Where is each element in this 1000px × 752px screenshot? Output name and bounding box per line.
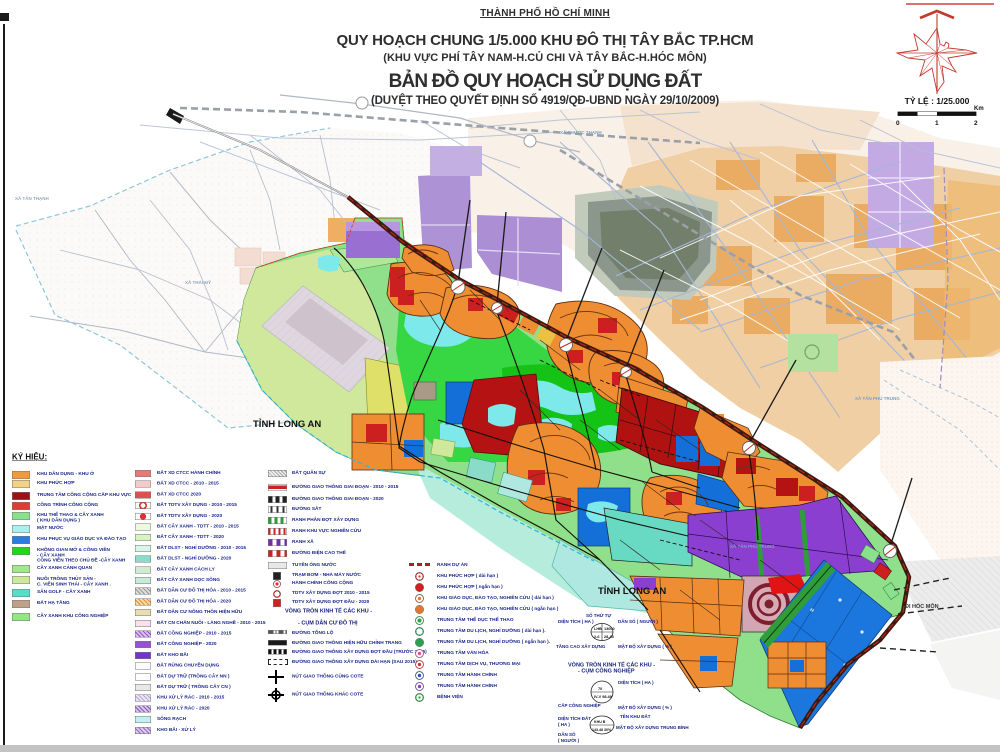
svg-text:28-45: 28-45 xyxy=(604,635,614,639)
svg-text:70: 70 xyxy=(598,687,602,691)
svg-text:TẦNG CAO XÂY DỰNG: TẦNG CAO XÂY DỰNG xyxy=(556,643,606,649)
svg-text:SỐ THỨ TỰ: SỐ THỨ TỰ xyxy=(586,612,611,618)
svg-text:13000: 13000 xyxy=(604,627,615,631)
svg-text:IV-V 98.48: IV-V 98.48 xyxy=(594,695,612,699)
svg-text:DÂN SỐ ( NGƯỜI ): DÂN SỐ ( NGƯỜI ) xyxy=(618,617,658,624)
svg-text:LHB: LHB xyxy=(594,627,602,631)
svg-text:MẬT ĐỘ XÂY DỰNG ( % ): MẬT ĐỘ XÂY DỰNG ( % ) xyxy=(618,703,672,710)
svg-text:143.48 30%: 143.48 30% xyxy=(592,728,612,732)
svg-text:TÊN KHU ĐẤT: TÊN KHU ĐẤT xyxy=(620,712,651,719)
svg-text:CẤP CÔNG NGHIỆP: CẤP CÔNG NGHIỆP xyxy=(558,701,601,708)
svg-text:2-6: 2-6 xyxy=(594,635,600,639)
svg-text:DÂN SỐ: DÂN SỐ xyxy=(558,731,576,737)
svg-text:MẬT ĐỘ XÂY DỰNG TRUNG BÌNH: MẬT ĐỘ XÂY DỰNG TRUNG BÌNH xyxy=(616,723,689,730)
svg-text:DIỆN TÍCH ĐẤT: DIỆN TÍCH ĐẤT xyxy=(558,714,591,721)
svg-text:KHU B: KHU B xyxy=(594,720,606,724)
svg-text:DIỆN TÍCH ( HA ): DIỆN TÍCH ( HA ) xyxy=(618,678,654,685)
svg-text:DIỆN TÍCH ( HA ): DIỆN TÍCH ( HA ) xyxy=(558,617,594,624)
svg-text:( HA ): ( HA ) xyxy=(558,722,570,727)
svg-text:MẬT ĐỘ XÂY DỰNG ( % ): MẬT ĐỘ XÂY DỰNG ( % ) xyxy=(618,642,672,649)
svg-text:( NGƯỜI ): ( NGƯỜI ) xyxy=(558,736,580,743)
